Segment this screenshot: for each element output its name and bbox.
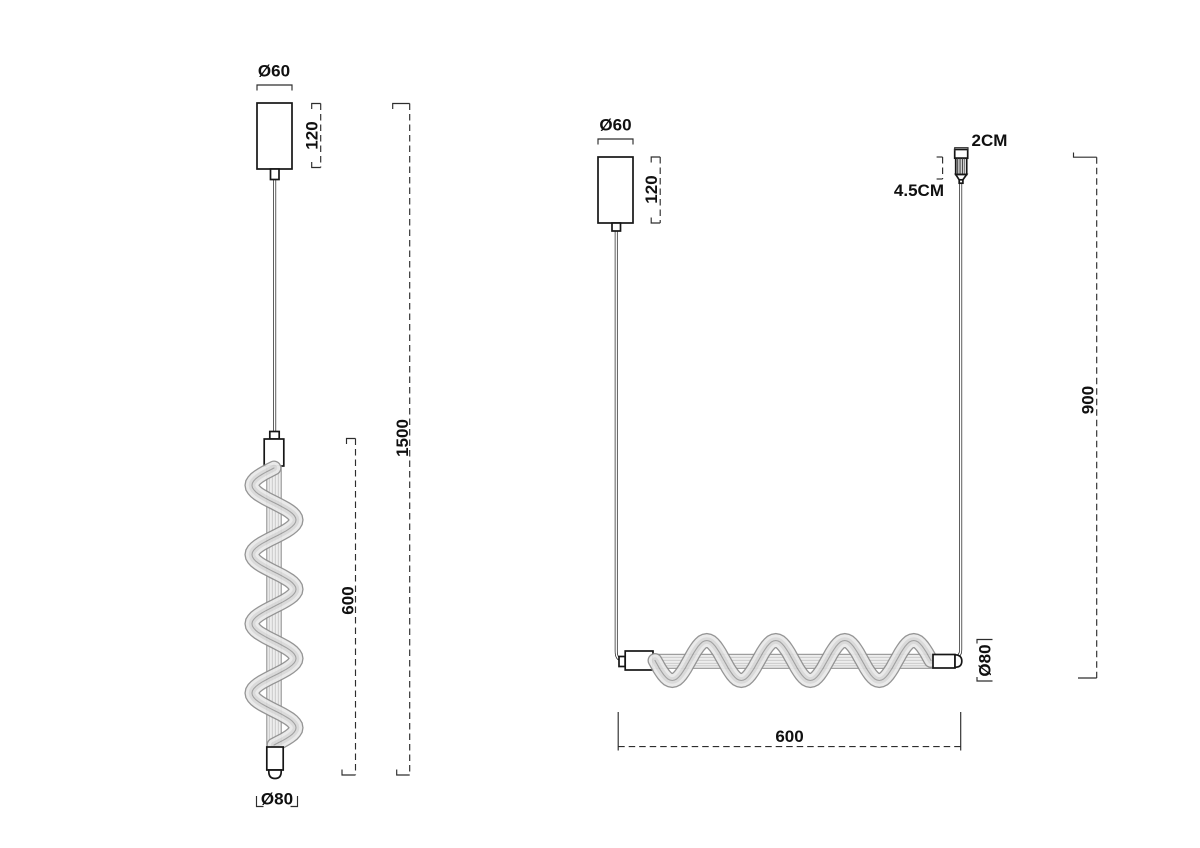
label-tube-length: 600 [775,727,803,746]
label-grip-width: 2CM [972,131,1008,150]
label-canopy-diameter: Ø60 [599,116,631,135]
right-end-cap-dome [955,655,962,667]
cord-grip [955,150,968,184]
technical-drawing-canvas: Ø60 120 600 1500 Ø80 [0,0,1200,848]
left-suspension-cord [616,230,621,660]
dim-canopy-diameter: Ø60 [257,62,292,91]
label-tube-length: 600 [339,586,358,614]
ceiling-canopy [598,157,633,223]
label-suspension-height: 900 [1079,386,1098,414]
dim-bottom-diameter: Ø80 [257,790,298,809]
left-drawing: Ø60 120 600 1500 Ø80 [252,62,412,809]
label-overall-height: 1500 [393,419,412,457]
ceiling-canopy [257,103,292,169]
right-end-cap [933,655,955,669]
dim-overall-height: 1500 [393,104,412,776]
label-canopy-height: 120 [303,121,322,149]
spiral-tube [252,468,296,745]
right-drawing: Ø60 120 2CM 4.5CM 900 [598,116,1098,751]
label-grip-height: 4.5CM [894,181,944,200]
left-end-socket [619,657,625,667]
dim-tube-length: 600 [618,712,961,751]
end-cap-dome [269,770,281,779]
label-canopy-diameter: Ø60 [258,62,290,81]
dim-tube-diameter: Ø80 [975,640,994,682]
label-tube-diameter: Ø80 [975,644,994,676]
label-canopy-height: 120 [642,175,661,203]
dim-canopy-height: 120 [642,157,661,223]
canopy-stem [271,169,280,180]
label-bottom-diameter: Ø80 [261,790,293,809]
bottom-end-cap [267,747,283,779]
dim-canopy-diameter: Ø60 [598,116,633,145]
right-suspension-cord [955,183,961,657]
dim-grip-height: 4.5CM [894,157,944,200]
pendant-lamp-dimension-diagram: Ø60 120 600 1500 Ø80 [0,0,1200,848]
dim-suspension-height: 900 [1074,153,1098,679]
dim-grip-width: 2CM [955,131,1008,151]
cord-connector [270,432,279,440]
dim-tube-length: 600 [339,439,358,776]
canopy-stem [612,223,621,231]
spiral-tube [655,641,931,681]
dim-canopy-height: 120 [303,104,322,168]
